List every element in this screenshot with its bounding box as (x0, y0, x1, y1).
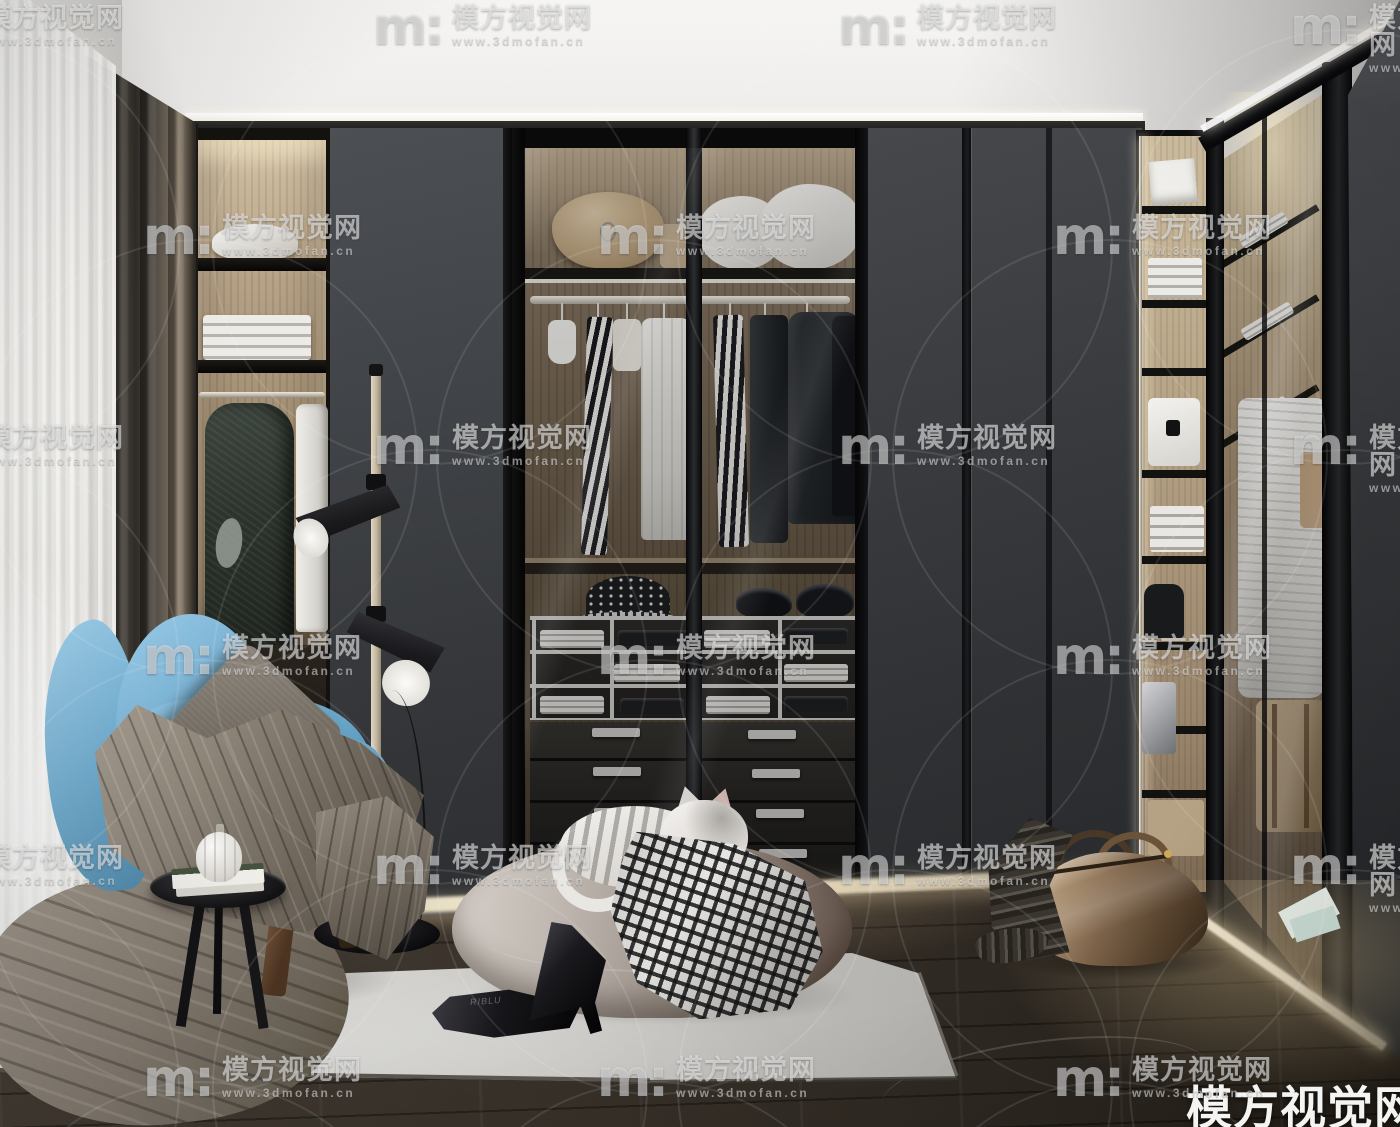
watermark-url: www.3dmofan.cn (0, 34, 124, 48)
watermark-url: www.3dmofan.cn (917, 34, 1057, 48)
watermark-logo-icon: m: (838, 5, 907, 49)
watermark-logo-icon: m: (1053, 215, 1122, 259)
watermark-tile: m:模方视觉网www.3dmofan.cn (373, 845, 592, 889)
watermark-url: www.3dmofan.cn (917, 874, 1057, 888)
watermark-url: www.3dmofan.cn (1132, 664, 1272, 678)
watermark-title: 模方视觉网 (917, 845, 1057, 872)
watermark-title: 模方视觉网 (676, 1057, 816, 1084)
watermark-logo-icon: m: (597, 215, 666, 259)
watermark-tile: m:模方视觉网www.3dmofan.cn (1290, 5, 1400, 75)
watermark-url: www.3dmofan.cn (1369, 481, 1400, 495)
watermark-url: www.3dmofan.cn (676, 244, 816, 258)
watermark-tile: m:模方视觉网www.3dmofan.cn (143, 1057, 362, 1101)
watermark-tile: m:模方视觉网www.3dmofan.cn (838, 5, 1057, 49)
watermark-url: www.3dmofan.cn (1132, 1086, 1272, 1100)
watermark-tile: m:模方视觉网www.3dmofan.cn (373, 5, 592, 49)
watermark-tile: m:模方视觉网www.3dmofan.cn (1290, 425, 1400, 495)
walk-in-closet-render: RIBLU 模方视觉网 m:模方视觉网www.3dmofan.cnm:模方视觉网… (0, 0, 1400, 1127)
watermark-url: www.3dmofan.cn (452, 34, 592, 48)
watermark-url: www.3dmofan.cn (1369, 901, 1400, 915)
watermark-title: 模方视觉网 (1369, 845, 1400, 899)
watermark-title: 模方视觉网 (1369, 5, 1400, 59)
watermark-logo-icon: m: (1053, 1057, 1122, 1101)
watermark-tile: m:模方视觉网www.3dmofan.cn (597, 635, 816, 679)
watermark-logo-icon: m: (143, 635, 212, 679)
watermark-url: www.3dmofan.cn (452, 454, 592, 468)
watermark-title: 模方视觉网 (452, 845, 592, 872)
watermark-title: 模方视觉网 (676, 635, 816, 662)
watermark-title: 模方视觉网 (222, 215, 362, 242)
watermark-logo-icon: m: (373, 5, 442, 49)
watermark-url: www.3dmofan.cn (222, 664, 362, 678)
watermark-tile: m:模方视觉网www.3dmofan.cn (1053, 1057, 1272, 1101)
watermark-url: www.3dmofan.cn (917, 454, 1057, 468)
watermark-logo-icon: m: (838, 845, 907, 889)
watermark-tile: m:模方视觉网www.3dmofan.cn (0, 425, 124, 469)
watermark-tile: m:模方视觉网www.3dmofan.cn (1290, 845, 1400, 915)
watermark-tile: m:模方视觉网www.3dmofan.cn (838, 845, 1057, 889)
watermark-logo-icon: m: (597, 635, 666, 679)
watermark-logo-icon: m: (143, 1057, 212, 1101)
watermark-title: 模方视觉网 (1132, 1057, 1272, 1084)
watermark-logo-icon: m: (373, 425, 442, 469)
watermark-url: www.3dmofan.cn (222, 1086, 362, 1100)
watermark-url: www.3dmofan.cn (676, 1086, 816, 1100)
watermark-title: 模方视觉网 (452, 425, 592, 452)
watermark-url: www.3dmofan.cn (1132, 244, 1272, 258)
watermark-tile: m:模方视觉网www.3dmofan.cn (597, 215, 816, 259)
watermark-title: 模方视觉网 (1369, 425, 1400, 479)
watermark-title: 模方视觉网 (0, 845, 124, 872)
watermark-title: 模方视觉网 (917, 5, 1057, 32)
watermark-tile: m:模方视觉网www.3dmofan.cn (373, 425, 592, 469)
watermark-title: 模方视觉网 (1132, 215, 1272, 242)
watermark-tile: m:模方视觉网www.3dmofan.cn (1053, 635, 1272, 679)
watermark-tile: m:模方视觉网www.3dmofan.cn (143, 635, 362, 679)
watermark-layer: 模方视觉网 m:模方视觉网www.3dmofan.cnm:模方视觉网www.3d… (0, 0, 1400, 1127)
watermark-url: www.3dmofan.cn (0, 874, 124, 888)
watermark-logo-icon: m: (838, 425, 907, 469)
watermark-title: 模方视觉网 (452, 5, 592, 32)
watermark-logo-icon: m: (1053, 635, 1122, 679)
watermark-title: 模方视觉网 (917, 425, 1057, 452)
watermark-logo-icon: m: (1290, 425, 1359, 469)
watermark-title: 模方视觉网 (0, 425, 124, 452)
watermark-url: www.3dmofan.cn (222, 244, 362, 258)
watermark-tile: m:模方视觉网www.3dmofan.cn (143, 215, 362, 259)
watermark-url: www.3dmofan.cn (1369, 61, 1400, 75)
watermark-logo-icon: m: (1290, 5, 1359, 49)
watermark-tile: m:模方视觉网www.3dmofan.cn (597, 1057, 816, 1101)
watermark-url: www.3dmofan.cn (0, 454, 124, 468)
watermark-tile: m:模方视觉网www.3dmofan.cn (1053, 215, 1272, 259)
watermark-logo-icon: m: (373, 845, 442, 889)
watermark-title: 模方视觉网 (0, 5, 124, 32)
watermark-title: 模方视觉网 (1132, 635, 1272, 662)
watermark-logo-icon: m: (597, 1057, 666, 1101)
watermark-logo-icon: m: (1290, 845, 1359, 889)
watermark-url: www.3dmofan.cn (452, 874, 592, 888)
watermark-title: 模方视觉网 (676, 215, 816, 242)
watermark-tile: m:模方视觉网www.3dmofan.cn (0, 845, 124, 889)
watermark-title: 模方视觉网 (222, 635, 362, 662)
watermark-url: www.3dmofan.cn (676, 664, 816, 678)
watermark-title: 模方视觉网 (222, 1057, 362, 1084)
watermark-tile: m:模方视觉网www.3dmofan.cn (0, 5, 124, 49)
watermark-logo-icon: m: (143, 215, 212, 259)
watermark-tile: m:模方视觉网www.3dmofan.cn (838, 425, 1057, 469)
